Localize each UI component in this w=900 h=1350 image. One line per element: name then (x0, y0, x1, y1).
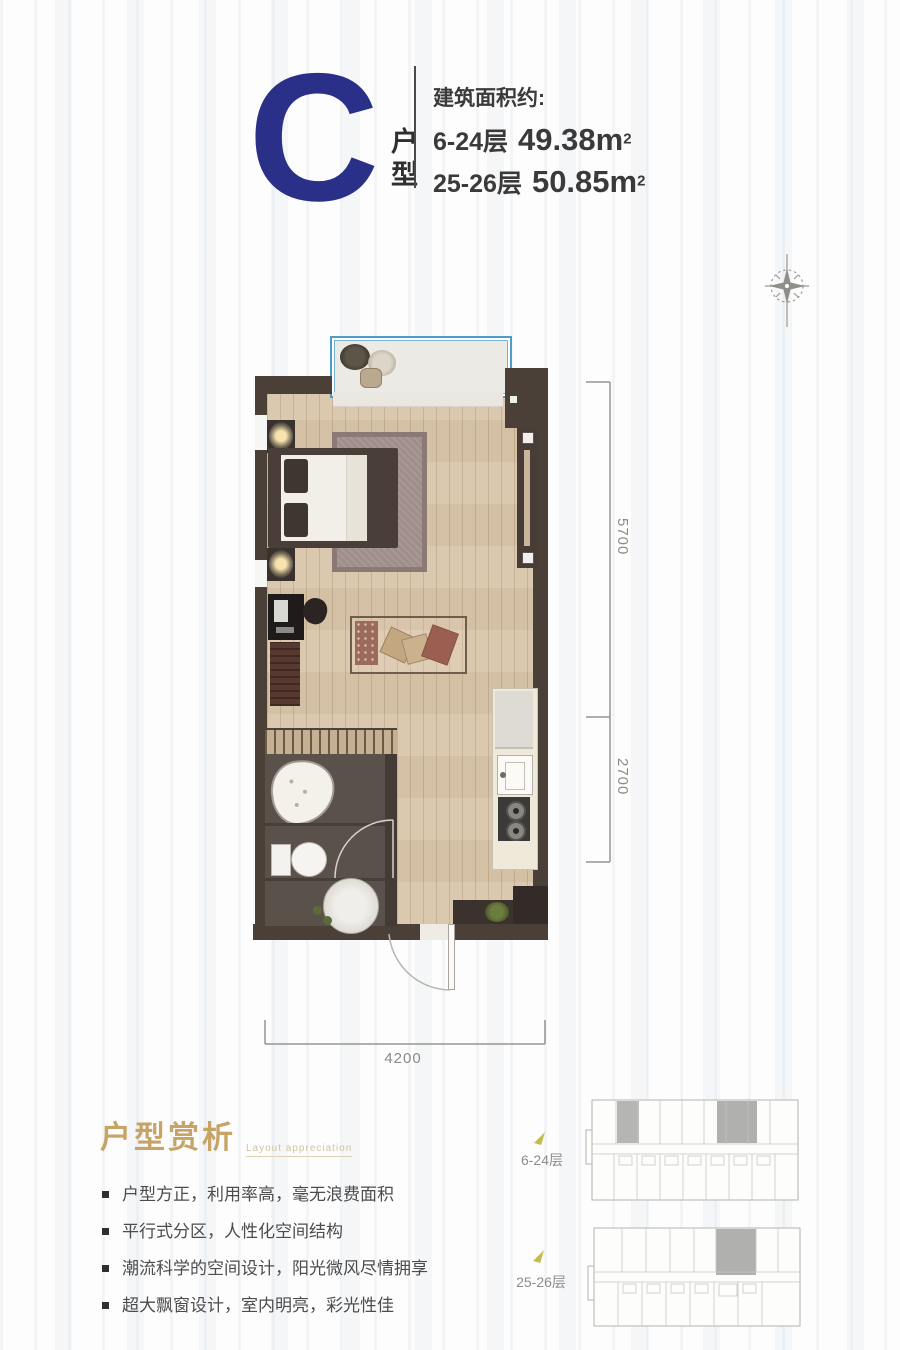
pillow-1 (284, 459, 308, 493)
unit-type-label: 户型 (383, 127, 422, 193)
bathroom-door-swing (265, 754, 397, 926)
tv-cabinet (268, 594, 304, 640)
highlight-unit (716, 1229, 756, 1275)
unit-type-letter: C (248, 46, 375, 228)
kitchen-sink (497, 755, 533, 795)
area-block: 建筑面积约: 6-24层49.38m2 25-26层50.85m2 (433, 82, 645, 206)
compass-icon (757, 253, 817, 329)
wardrobe (517, 428, 537, 568)
wardrobe-rail (524, 450, 530, 546)
keyplate-25-26 (588, 1222, 806, 1334)
dimension-2700: 2700 (614, 758, 631, 795)
entry-door-swing (373, 916, 463, 1006)
analysis-bullet: 潮流科学的空间设计，阳光微风尽情拥享 (100, 1259, 500, 1279)
dimension-line-bottom (260, 1014, 552, 1050)
highlight-unit (617, 1101, 639, 1143)
analysis-bullet: 平行式分区，人性化空间结构 (100, 1222, 500, 1242)
analysis-bullet: 户型方正，利用率高，毫无浪费面积 (100, 1185, 500, 1205)
lamp-glow-icon (269, 422, 293, 450)
analysis-subtitle: Layout appreciation (246, 1143, 352, 1157)
left-window-gap-2 (255, 560, 267, 587)
sofa-cushion (355, 621, 378, 665)
area-line-1: 6-24层49.38m2 (433, 122, 645, 158)
analysis-title: 户型赏析 (100, 1112, 236, 1157)
tv-remote (276, 627, 294, 633)
leaf-marker-icon (534, 1132, 547, 1145)
bullet-square-icon (102, 1191, 109, 1198)
tv-screen (274, 600, 288, 622)
lamp-glow-icon (269, 550, 293, 578)
floorplan-poster: C 户型 建筑面积约: 6-24层49.38m2 25-26层50.85m2 (0, 0, 900, 1350)
area-line-2: 25-26层50.85m2 (433, 164, 645, 200)
mattress-fold (346, 455, 367, 541)
window-plant-icon (340, 344, 370, 370)
burner-dot (513, 828, 519, 834)
coat-rack (265, 728, 397, 756)
stove (498, 797, 530, 841)
sink-basin (505, 762, 525, 790)
analysis-bullet-list: 户型方正，利用率高，毫无浪费面积 平行式分区，人性化空间结构 潮流科学的空间设计… (100, 1185, 500, 1316)
burner-1 (506, 801, 526, 821)
window-basket-icon (360, 368, 382, 388)
window-sill (333, 392, 503, 407)
plate-label-25-26: 25-26层 (505, 1272, 577, 1292)
burner-dot (513, 808, 519, 814)
entry-plant-icon (485, 902, 509, 922)
kitchen-counter (492, 688, 538, 870)
keyplate-6-24 (586, 1094, 804, 1208)
wardrobe-handle-bottom (522, 552, 534, 564)
leaf-marker-icon (533, 1250, 546, 1263)
highlight-unit (717, 1101, 757, 1143)
nightstand-lamp-bottom (267, 548, 295, 581)
wall-column-bottom-right (513, 886, 548, 924)
left-window-gap-1 (255, 415, 267, 450)
bullet-square-icon (102, 1265, 109, 1272)
bathroom (265, 728, 397, 926)
media-shelf (270, 642, 300, 706)
burner-2 (506, 821, 526, 841)
analysis-section: 户型赏析 Layout appreciation 户型方正，利用率高，毫无浪费面… (100, 1112, 500, 1333)
dimension-5700: 5700 (614, 518, 631, 555)
fridge (495, 691, 533, 749)
wardrobe-handle-top (522, 432, 534, 444)
plate-label-6-24: 6-24层 (510, 1150, 574, 1170)
header-divider (414, 66, 416, 188)
bay-window (330, 336, 512, 398)
sofa-daybed (350, 616, 467, 674)
pillow-2 (284, 503, 308, 537)
bullet-square-icon (102, 1302, 109, 1309)
analysis-bullet: 超大飘窗设计，室内明亮，彩光性佳 (100, 1296, 500, 1316)
faucet-icon (500, 772, 506, 778)
dimension-4200: 4200 (353, 1050, 453, 1067)
wall-switch (510, 396, 517, 403)
bed (268, 448, 398, 548)
apartment-floorplan (253, 336, 551, 1012)
area-intro: 建筑面积约: (433, 82, 645, 112)
bullet-square-icon (102, 1228, 109, 1235)
